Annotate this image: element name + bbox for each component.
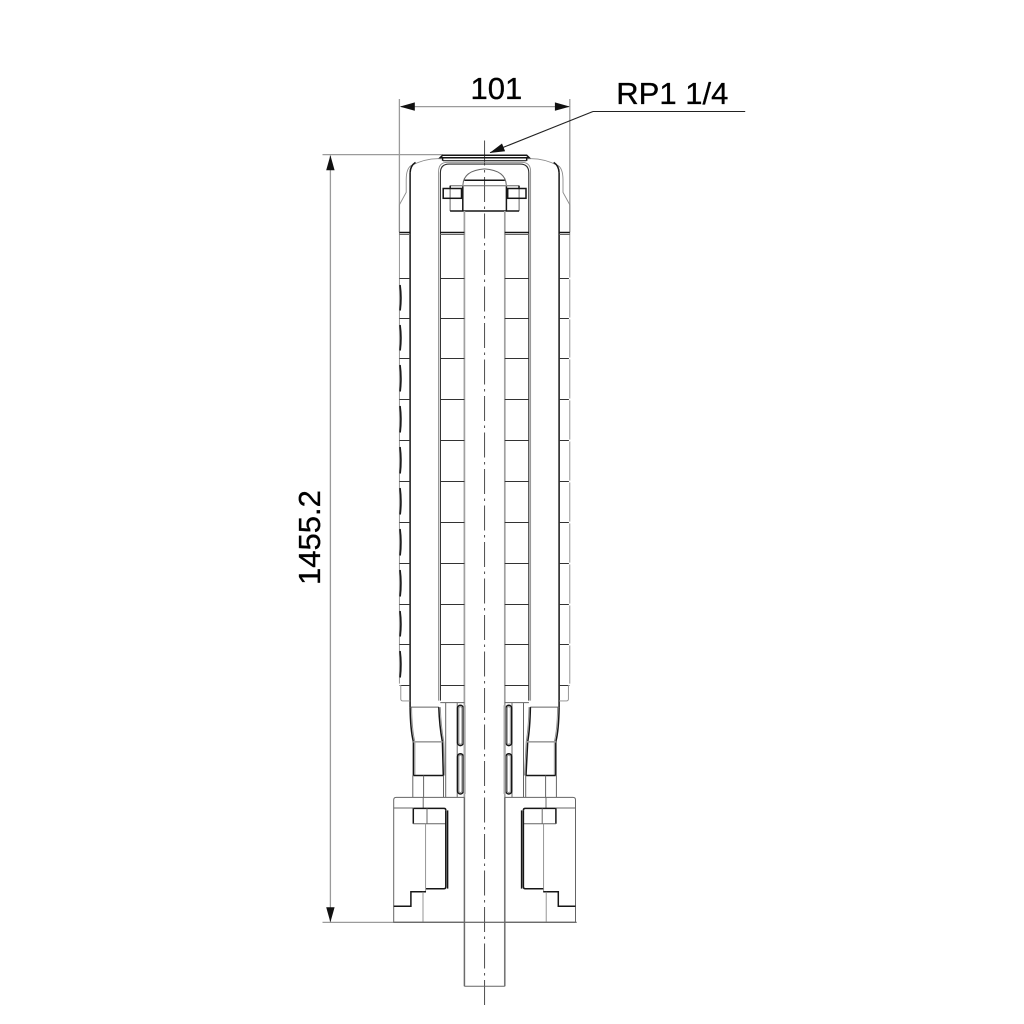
svg-text:101: 101 xyxy=(471,71,523,106)
svg-text:1455.2: 1455.2 xyxy=(292,490,327,585)
svg-text:RP1 1/4: RP1 1/4 xyxy=(616,76,728,111)
